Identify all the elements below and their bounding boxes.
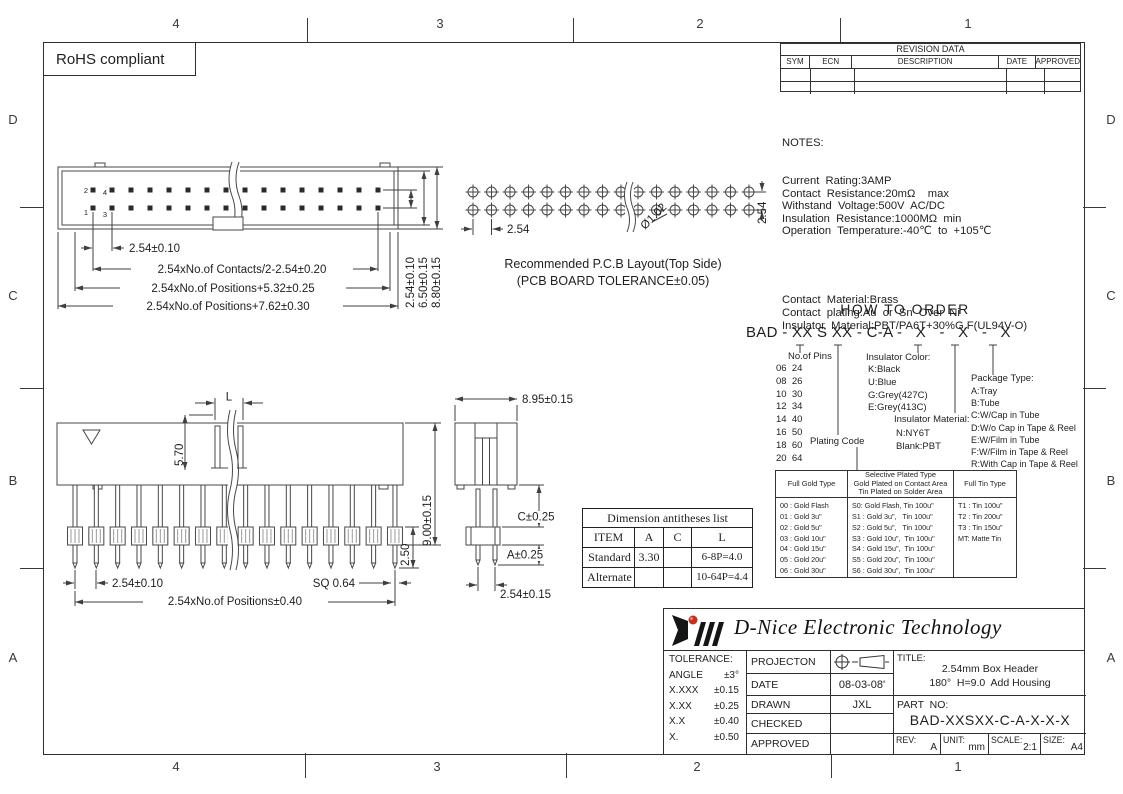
- dim-c: C±0.25: [518, 512, 555, 524]
- rev-value: A: [930, 742, 937, 753]
- package-type-option: B:Tube: [971, 397, 1078, 409]
- revision-col-ecn: ECN: [810, 56, 852, 68]
- gold-plating-option: 06 : Gold 30u": [780, 566, 844, 577]
- date-label: DATE: [747, 674, 830, 695]
- selective-plating-option: S0: Gold Flash, Tin 100u": [852, 501, 950, 512]
- pin-count-option: 10 30: [776, 389, 802, 402]
- zone-tick: [20, 207, 43, 208]
- pin1-triangle-mark: [83, 430, 100, 444]
- insulator-color-label: Insulator Color:: [866, 352, 930, 363]
- dim-pitch: 2.54±0.15: [500, 589, 551, 601]
- plating-table-header: Full Gold Type Selective Plated Type Gol…: [776, 471, 1016, 498]
- zone-col-label: 2: [689, 16, 711, 31]
- note-line: Contact Resistance:20mΩ max: [782, 188, 1027, 201]
- checked-label: CHECKED: [747, 714, 830, 733]
- dim-l: L: [226, 392, 233, 404]
- plating-code-table: Full Gold Type Selective Plated Type Gol…: [775, 470, 1017, 578]
- dim-col-item: ITEM: [583, 528, 635, 547]
- pin-number-4: 4: [103, 188, 107, 197]
- dim-570: 5.70: [174, 444, 186, 466]
- gold-plating-option: 04 : Gold 15u": [780, 544, 844, 555]
- zone-row-label: A: [1100, 650, 1122, 665]
- selective-plating-option: S1 : Gold 3u", Tin 100u": [852, 512, 950, 523]
- tin-plating-option: T2 : Tin 200u": [958, 512, 1013, 523]
- dim-cell: [635, 568, 664, 587]
- gold-type-list: 00 : Gold Flash01 : Gold 3u"02 : Gold 5u…: [776, 498, 848, 577]
- dimension-antitheses-table: Dimension antitheses list ITEM A C L Sta…: [582, 508, 753, 588]
- note-line: Current Rating:3AMP: [782, 175, 1027, 188]
- vdim-outer-height: 8.80±0.15: [431, 257, 443, 308]
- company-name: D-Nice Electronic Technology: [734, 615, 1002, 640]
- selective-type-header: Selective Plated Type Gold Plated on Con…: [848, 471, 954, 497]
- revision-col-date: DATE: [999, 56, 1036, 68]
- zone-tick: [1083, 207, 1106, 208]
- dim-cell: 10-64P=4.4: [692, 568, 752, 587]
- tin-plating-option: T1 : Tin 100u": [958, 501, 1013, 512]
- polarization-notch: [213, 217, 243, 230]
- selective-plating-option: S6 : Gold 30u", Tin 100u": [852, 566, 950, 577]
- pin-number-2: 2: [84, 186, 88, 195]
- selective-type-list: S0: Gold Flash, Tin 100u"S1 : Gold 3u", …: [848, 498, 954, 577]
- dim-sq: SQ 0.64: [313, 578, 356, 590]
- part-no-label: PART NO:: [897, 699, 948, 711]
- gold-plating-option: 05 : Gold 20u": [780, 555, 844, 566]
- zone-row-label: B: [2, 473, 24, 488]
- package-type-option: C:W/Cap in Tube: [971, 409, 1078, 421]
- revision-table-title: REVISION DATA: [781, 44, 1080, 56]
- dim-cell: Standard: [583, 548, 635, 567]
- tin-type-list: T1 : Tin 100u"T2 : Tin 200u"T3 : Tin 150…: [954, 498, 1016, 577]
- pins-label: No.of Pins: [788, 351, 832, 362]
- dim-positions-a: 2.54xNo.of Positions+5.32±0.25: [151, 283, 314, 295]
- vdim-row-pitch: 2.54±0.10: [405, 257, 417, 308]
- drawn-label: DRAWN: [747, 696, 830, 713]
- company-logo-icon: [670, 612, 726, 648]
- zone-col-label: 2: [686, 759, 708, 774]
- checked-value: [831, 714, 893, 733]
- package-type-option: A:Tray: [971, 385, 1078, 397]
- drawing-sheet: 4 3 2 1 4 3 2 1 D C B A D C B A RoHS com…: [0, 0, 1123, 794]
- dim-250: 2.50: [400, 544, 412, 566]
- zone-tick: [573, 18, 574, 42]
- zone-row-label: A: [2, 650, 24, 665]
- selective-plating-option: S4 : Gold 15u", Tin 100u": [852, 544, 950, 555]
- dim-col-a: A: [635, 528, 664, 547]
- title-part-section: TITLE: 2.54mm Box Header 180° H=9.0 Add …: [894, 651, 1086, 754]
- pin-count-option: 18 60: [776, 440, 802, 453]
- zone-tick: [20, 388, 43, 389]
- plating-code-label: Plating Code: [810, 436, 864, 447]
- notes-electrical-list: Current Rating:3AMPContact Resistance:20…: [782, 175, 1027, 238]
- selective-plating-option: S2 : Gold 5u", Tin 100u": [852, 523, 950, 534]
- revision-table-header: SYM ECN DESCRIPTION DATE APPROVED: [781, 56, 1080, 69]
- dim-total: 2.54xNo.of Positions±0.40: [168, 596, 302, 608]
- front-view-drawing: L 5.70 9.00±0.15 2.50 2.54±0.10 SQ 0.64 …: [43, 390, 463, 618]
- revision-empty-row: [781, 69, 1080, 82]
- pin-count-option: 08 26: [776, 376, 802, 389]
- zone-col-label: 3: [426, 759, 448, 774]
- zone-tick: [305, 753, 306, 778]
- revision-col-description: DESCRIPTION: [852, 56, 999, 68]
- dim-col-c: C: [664, 528, 692, 547]
- dim-cell: 3.30: [635, 548, 664, 567]
- insulator-color-option: U:Blue: [868, 377, 928, 390]
- pin-count-option: 20 64: [776, 453, 802, 466]
- zone-row-label: C: [2, 288, 24, 303]
- zone-row-label: B: [1100, 473, 1122, 488]
- pcb-caption-line2: (PCB BOARD TOLERANCE±0.05): [455, 274, 771, 288]
- scale-label: SCALE:: [991, 735, 1022, 745]
- note-line: Operation Temperature:-40℃ to +105℃: [782, 225, 1027, 238]
- insulator-color-option: K:Black: [868, 364, 928, 377]
- zone-tick: [566, 753, 567, 778]
- dim-positions-b: 2.54xNo.of Positions+7.62±0.30: [146, 301, 309, 313]
- dim-pitch: 2.54±0.10: [112, 578, 163, 590]
- zone-col-label: 4: [165, 16, 187, 31]
- pin-count-option: 16 50: [776, 427, 802, 440]
- revision-empty-row: [781, 82, 1080, 94]
- dim-a: A±0.25: [507, 550, 543, 562]
- pcb-layout-drawing: 2.54 Ø1.02 2.54: [455, 175, 775, 290]
- pin-count-option: 14 40: [776, 414, 802, 427]
- tin-plating-option: MT: Matte Tin: [958, 534, 1013, 545]
- pin-count-option: 12 34: [776, 401, 802, 414]
- insulator-material-label: Insulator Material:: [894, 414, 970, 425]
- note-line: Insulation Resistance:1000MΩ min: [782, 213, 1027, 226]
- insulator-material-list: N:NY6TBlank:PBT: [896, 427, 941, 453]
- dim-width: 8.95±0.15: [522, 394, 573, 406]
- rohs-badge: RoHS compliant: [43, 42, 196, 76]
- selective-plating-option: S5 : Gold 20u", Tin 100u": [852, 555, 950, 566]
- dim-contacts: 2.54xNo.of Contacts/2-2.54±0.20: [158, 264, 327, 276]
- zone-row-label: D: [1100, 112, 1122, 127]
- gold-plating-option: 03 : Gold 10u": [780, 534, 844, 545]
- unit-value: mm: [968, 742, 985, 753]
- dim-pitch: 2.54±0.10: [129, 243, 180, 255]
- notes-heading: NOTES:: [782, 137, 1027, 150]
- gold-type-header: Full Gold Type: [776, 471, 848, 497]
- package-type-option: F:W/Film in Tape & Reel: [971, 446, 1078, 458]
- pin-number-3: 3: [103, 210, 107, 219]
- pcb-caption-line1: Recommended P.C.B Layout(Top Side): [455, 257, 771, 271]
- rev-label: REV:: [896, 735, 916, 745]
- package-type-option: D:W/o Cap in Tape & Reel: [971, 422, 1078, 434]
- revision-col-approved: APPROVED: [1036, 56, 1080, 68]
- zone-tick: [840, 18, 841, 42]
- gold-plating-option: 00 : Gold Flash: [780, 501, 844, 512]
- package-type-list: A:TrayB:TubeC:W/Cap in TubeD:W/o Cap in …: [971, 385, 1078, 470]
- part-number: BAD-XXSXX-C-A-X-X-X: [894, 712, 1086, 728]
- package-type-option: R:With Cap in Tape & Reel: [971, 458, 1078, 470]
- pin-number-1: 1: [84, 208, 88, 217]
- title-block: D-Nice Electronic Technology TOLERANCE: …: [663, 608, 1085, 755]
- zone-col-label: 1: [957, 16, 979, 31]
- insulator-material-option: Blank:PBT: [896, 440, 941, 453]
- gold-plating-option: 02 : Gold 5u": [780, 523, 844, 534]
- size-label: SIZE:: [1043, 735, 1065, 745]
- approved-label: APPROVED: [747, 734, 830, 754]
- company-header: D-Nice Electronic Technology: [664, 609, 1084, 651]
- gold-plating-option: 01 : Gold 3u": [780, 512, 844, 523]
- zone-tick: [831, 753, 832, 778]
- package-type-option: E:W/Film in Tube: [971, 434, 1078, 446]
- tolerance-label: TOLERANCE:: [669, 654, 741, 665]
- dim-cell: [664, 568, 692, 587]
- dim-table-row-standard: Standard 3.30 6-8P=4.0: [583, 548, 752, 568]
- zone-tick: [307, 18, 308, 42]
- dim-cell: Alternate: [583, 568, 635, 587]
- scale-value: 2:1: [1023, 742, 1037, 753]
- size-value: A4: [1071, 742, 1083, 753]
- pcb-dim-row: 2.54: [757, 201, 769, 224]
- dim-table-row-alternate: Alternate 10-64P=4.4: [583, 568, 752, 587]
- selective-plating-option: S3 : Gold 10u", Tin 100u": [852, 534, 950, 545]
- drawn-value: JXL: [831, 696, 893, 713]
- insulator-color-list: K:BlackU:BlueG:Grey(427C)E:Grey(413C): [868, 364, 928, 415]
- date-value: 08-03-08': [831, 674, 893, 695]
- tin-plating-option: T3 : Tin 150u": [958, 523, 1013, 534]
- pin-count-option: 06 24: [776, 363, 802, 376]
- top-view-drawing: 2 4 1 3 2.54±0.10 2.54xNo.of Contacts/2-…: [43, 150, 463, 320]
- zone-tick: [20, 568, 43, 569]
- pcb-pads: [466, 185, 757, 218]
- unit-label: UNIT:: [943, 735, 965, 745]
- insulator-color-option: G:Grey(427C): [868, 390, 928, 403]
- third-angle-projection-icon: [833, 652, 891, 672]
- projection-label: PROJECTON: [747, 651, 830, 673]
- dim-cell: [664, 548, 692, 567]
- tolerance-cell: TOLERANCE: ANGLE±3° X.XXX±0.15 X.XX±0.25…: [664, 651, 747, 754]
- note-line: Withstand Voltage:500V AC/DC: [782, 200, 1027, 213]
- vdim-inner-height: 6.50±0.15: [418, 257, 430, 308]
- insulator-material-option: N:NY6T: [896, 427, 941, 440]
- approved-value: [831, 734, 893, 754]
- tin-type-header: Full Tin Type: [954, 471, 1016, 497]
- zone-col-label: 1: [947, 759, 969, 774]
- zone-row-label: D: [2, 112, 24, 127]
- plating-table-body: 00 : Gold Flash01 : Gold 3u"02 : Gold 5u…: [776, 498, 1016, 577]
- revision-col-sym: SYM: [781, 56, 810, 68]
- pcb-dim-pitch: 2.54: [507, 224, 530, 236]
- drawing-title-line2: 180° H=9.0 Add Housing: [894, 677, 1086, 689]
- pins-list: 06 2408 2610 3012 3414 4016 5018 6020 64: [776, 363, 802, 465]
- drawing-title-line1: 2.54mm Box Header: [894, 663, 1086, 675]
- package-type-label: Package Type:: [971, 373, 1034, 384]
- dim-height: 9.00±0.15: [422, 495, 434, 546]
- revision-table: REVISION DATA SYM ECN DESCRIPTION DATE A…: [780, 43, 1081, 92]
- dim-table-title: Dimension antitheses list: [583, 509, 752, 528]
- dim-cell: 6-8P=4.0: [692, 548, 752, 567]
- zone-col-label: 3: [429, 16, 451, 31]
- dim-col-l: L: [692, 528, 752, 547]
- zone-row-label: C: [1100, 288, 1122, 303]
- dim-table-header: ITEM A C L: [583, 528, 752, 548]
- zone-col-label: 4: [165, 759, 187, 774]
